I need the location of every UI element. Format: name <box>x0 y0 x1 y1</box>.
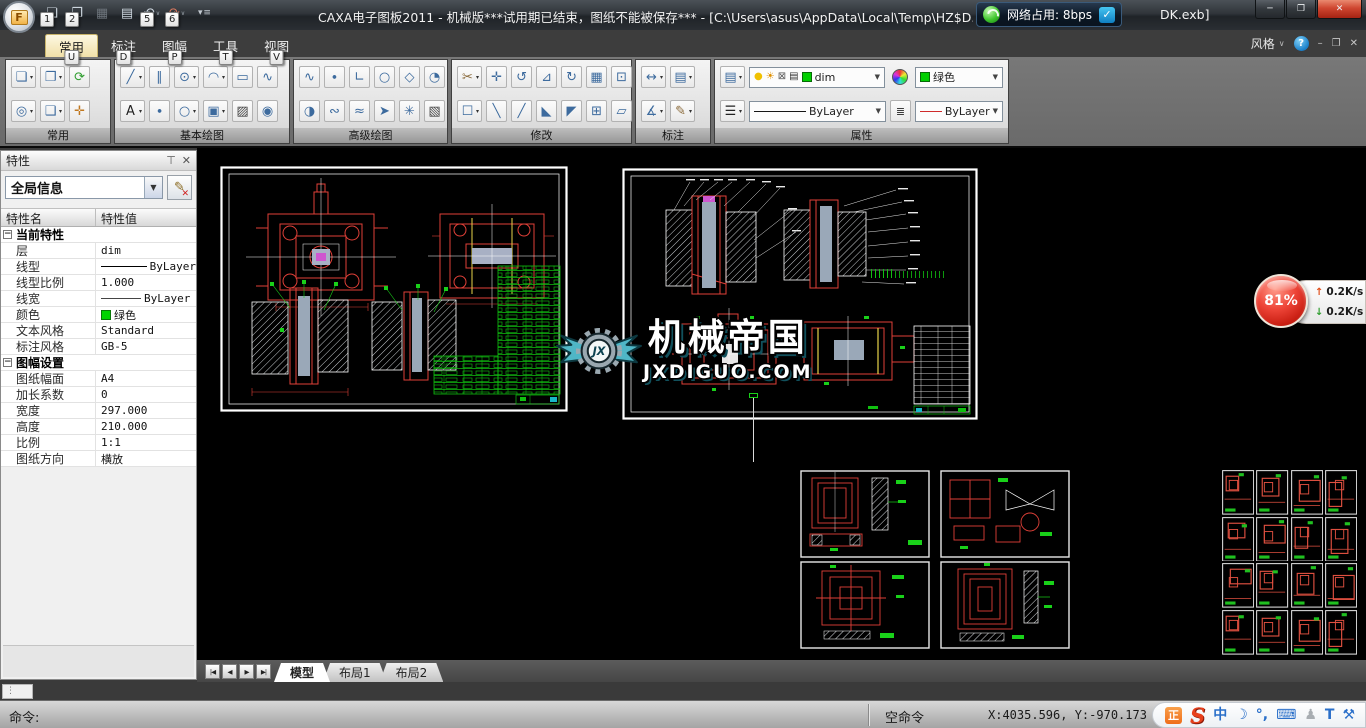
trim-button[interactable]: ╲ <box>486 100 507 122</box>
close-icon[interactable]: ✕ <box>182 155 191 166</box>
drawing-thumbnail <box>1291 563 1323 608</box>
property-row[interactable]: 加长系数0 <box>1 387 196 403</box>
linetype-combo[interactable]: ByLayer ▼ <box>749 101 886 122</box>
color-wheel-icon[interactable] <box>892 69 908 85</box>
properties-panel: 特性 ⊤ ✕ 全局信息 ▼ ✎ ✕ 特性名 特性值 <box>0 150 197 680</box>
frame-select-button[interactable]: ☐▾ <box>457 100 482 122</box>
soft-keyboard-icon[interactable]: ⌨ <box>1276 708 1296 722</box>
property-row[interactable]: 线型ByLayer <box>1 259 196 275</box>
tab-视图[interactable]: 视图V <box>251 34 302 57</box>
customize-toolbar-button[interactable]: ▾ ≡ <box>198 8 210 18</box>
properties-table-header: 特性名 特性值 <box>1 209 196 227</box>
paste-button[interactable]: ❏▾ <box>11 66 36 88</box>
drawing-thumbnail <box>1222 563 1254 608</box>
property-row[interactable]: 文本风格Standard <box>1 323 196 339</box>
part-sheet <box>940 470 1070 558</box>
properties-row-1: ▤▾ ● ☀ ⊠ ▤ dim ▼ 绿色 ▼ <box>715 60 1008 94</box>
title-bar: F ❏1❐2▦▤↶∨5↷∨6▾ ≡ CAXA电子图板2011 - 机械版***试… <box>0 0 1366 30</box>
upload-arrow-icon: ↑ <box>1315 287 1323 298</box>
status-divider <box>868 704 869 726</box>
tab-keytip-V: V <box>269 50 284 65</box>
rotate-copy-button[interactable]: ↺ <box>511 66 532 88</box>
linewidth-button[interactable]: ☰▾ <box>720 100 745 122</box>
ribbon-group-高级绘图: ∿∙∟○◇◔◑∾≈➤✳▧高级绘图 <box>293 59 448 144</box>
tab-keytip-P: P <box>168 50 182 65</box>
watermark: JX 机械帝国 JXDIGUO.COM <box>555 300 855 402</box>
drawing-thumbnail <box>1222 610 1254 655</box>
drawing-sheet-assembly-1 <box>220 166 568 412</box>
layer-color-swatch <box>802 72 812 82</box>
toolbox-icon[interactable]: ⚒ <box>1342 708 1355 722</box>
pan-button[interactable]: ✛ <box>69 100 90 122</box>
curve-button[interactable]: ∿ <box>299 66 320 88</box>
punctuation-icon[interactable]: °, <box>1256 708 1268 722</box>
spline-button[interactable]: ∿ <box>257 66 278 88</box>
minimize-button[interactable]: ─ <box>1255 0 1285 19</box>
drawing-thumbnail <box>1325 517 1357 562</box>
edit-properties-button[interactable]: ✎ ✕ <box>167 175 192 200</box>
mdi-controls: 风格 ∨ ? – ❐ ✕ <box>1251 30 1366 57</box>
tab-keytip-D: D <box>116 50 132 65</box>
doc-close-button[interactable]: ✕ <box>1350 38 1358 49</box>
circle-button[interactable]: ⊙▾ <box>174 66 199 88</box>
sheet-nav-button-2[interactable]: ▶ <box>239 664 254 679</box>
construction-line <box>753 398 754 462</box>
ribbon: ▤▾ ● ☀ ⊠ ▤ dim ▼ 绿色 ▼ ☰▾ <box>0 57 1366 148</box>
part-sheet <box>800 470 930 558</box>
sheet-tab-nav: |◀◀▶▶| <box>205 664 271 679</box>
network-usage-text: 网络占用: 8bps <box>1007 6 1092 23</box>
check-badge-icon[interactable]: ✓ <box>1099 7 1115 23</box>
wave-line-button[interactable]: ∾ <box>324 100 345 122</box>
chevron-down-icon[interactable]: ▼ <box>144 177 162 198</box>
copy-button[interactable]: ❐▾ <box>40 66 65 88</box>
ellipse2-button[interactable]: ○ <box>374 66 395 88</box>
scale-button[interactable]: ⊡ <box>611 66 632 88</box>
skin-icon[interactable]: T <box>1325 708 1335 722</box>
arrow-button[interactable]: ➤ <box>374 100 395 122</box>
layer-lock-icon: ⊠ <box>778 72 786 82</box>
coordinate-dim-button[interactable]: ∡▾ <box>641 100 666 122</box>
drawing-thumbnail <box>1222 470 1254 515</box>
property-row[interactable]: 比例1:1 <box>1 435 196 451</box>
memory-percent-ball[interactable]: 81% <box>1254 274 1308 328</box>
properties-table-body: −当前特性层dim线型ByLayer线型比例1.000线宽ByLayer颜色绿色… <box>1 227 196 467</box>
pin-icon[interactable]: ⊤ <box>166 155 176 166</box>
dimension-button[interactable]: ↔▾ <box>641 66 666 88</box>
clear-icon: ✕ <box>181 189 189 199</box>
print-button[interactable]: ▤ <box>117 3 137 23</box>
main-area: 特性 ⊤ ✕ 全局信息 ▼ ✎ ✕ 特性名 特性值 <box>0 148 1366 682</box>
layer-on-icon: ● <box>754 72 763 82</box>
tab-keytip-U: U <box>64 50 79 65</box>
parallel-line-button[interactable]: ∥ <box>149 66 170 88</box>
chevron-down-icon[interactable]: ∨ <box>1279 39 1285 48</box>
drawing-canvas[interactable]: JX 机械帝国 JXDIGUO.COM ↑0.2K/s ↓0.2K/s 81% <box>197 148 1366 660</box>
drawing-thumbnail <box>1256 517 1288 562</box>
dim-linetype-swatch <box>920 111 942 112</box>
point-button[interactable]: ∙ <box>149 100 170 122</box>
region-button[interactable]: ◉ <box>257 100 278 122</box>
property-row[interactable]: 标注风格GB-5 <box>1 339 196 355</box>
stretch-button[interactable]: ▱ <box>611 100 632 122</box>
array-button[interactable]: ▦ <box>586 66 607 88</box>
rectangle-button[interactable]: ▭ <box>232 66 253 88</box>
part-sheet <box>940 561 1070 649</box>
selection-dropdown[interactable]: 全局信息 ▼ <box>5 176 163 199</box>
property-row[interactable]: 图纸方向横放 <box>1 451 196 467</box>
hatch-button[interactable]: ▨ <box>232 100 253 122</box>
property-row[interactable]: 宽度297.000 <box>1 403 196 419</box>
new-file-button-keytip: 1 <box>40 12 54 27</box>
ribbon-group-基本绘图: ╱▾∥⊙▾◠▾▭∿A▾∙○▾▣▾▨◉基本绘图 <box>114 59 290 144</box>
ribbon-group-常用: ❏▾❐▾⟳◎▾❑▾✛常用 <box>5 59 111 144</box>
column-header-name: 特性名 <box>1 209 96 226</box>
properties-panel-title: 特性 <box>6 152 30 169</box>
ribbon-group-label: 修改 <box>452 128 631 143</box>
line-button[interactable]: ╱▾ <box>120 66 145 88</box>
drawing-thumbnail <box>1256 470 1288 515</box>
drawing-thumbnail <box>1325 563 1357 608</box>
network-guard-icon <box>983 6 1000 23</box>
help-icon[interactable]: ? <box>1294 36 1309 51</box>
command-mode: 空命令 <box>885 707 924 726</box>
window-controls: ─ ❐ ✕ <box>1255 0 1362 19</box>
property-row[interactable]: 线型比例1.000 <box>1 275 196 291</box>
undo-button-keytip: 5 <box>140 12 154 27</box>
property-group-row[interactable]: −当前特性 <box>1 227 196 243</box>
erase-button[interactable]: ✂▾ <box>457 66 482 88</box>
layer-print-icon: ▤ <box>789 72 798 82</box>
ellipse-button[interactable]: ○▾ <box>174 100 199 122</box>
sheet-nav-button-0[interactable]: |◀ <box>205 664 220 679</box>
properties-panel-header: 特性 ⊤ ✕ <box>1 151 196 171</box>
dimension-style-combo[interactable]: ByLayer ▼ <box>915 101 1003 122</box>
ribbon-group-修改: ✂▾✛↺⊿↻▦⊡☐▾╲╱◣◤⊞▱修改 <box>451 59 632 144</box>
redraw-button[interactable]: ⟳ <box>69 66 90 88</box>
properties-description-box <box>3 645 194 677</box>
sheet-tab-strip: |◀◀▶▶| 模型布局1布局2 <box>197 660 1366 682</box>
point-style-button[interactable]: ∙ <box>324 66 345 88</box>
corner-button[interactable]: ◣ <box>536 100 557 122</box>
save-button[interactable]: ▦ <box>92 3 112 23</box>
drawing-thumbnail <box>1256 563 1288 608</box>
linetype-swatch <box>754 111 806 112</box>
tab-工具[interactable]: 工具T <box>200 34 251 57</box>
cursor-coordinates: X:4035.596, Y:-970.173 <box>988 708 1147 722</box>
app-logo-icon: F <box>11 10 28 25</box>
solid-fill-button[interactable]: ▧ <box>424 100 445 122</box>
tab-keytip-T: T <box>218 50 232 65</box>
block-button[interactable]: ▣▾ <box>203 100 228 122</box>
close-button[interactable]: ✕ <box>1317 0 1362 19</box>
undo-button[interactable]: ↶∨5 <box>142 3 162 23</box>
zoom-button[interactable]: ◎▾ <box>11 100 36 122</box>
chamfer-button[interactable]: ◤ <box>561 100 582 122</box>
ribbon-tab-bar: 常用U标注D图幅P工具T视图V 风格 ∨ ? – ❐ ✕ <box>0 30 1366 57</box>
axis-button[interactable]: ∟ <box>349 66 370 88</box>
properties-table: 特性名 特性值 −当前特性层dim线型ByLayer线型比例1.000线宽ByL… <box>1 208 196 467</box>
drawing-thumbnail <box>1291 517 1323 562</box>
sheet-nav-button-1[interactable]: ◀ <box>222 664 237 679</box>
window-title: CAXA电子图板2011 - 机械版***试用期已结束，图纸不能被保存*** -… <box>318 7 973 26</box>
command-band <box>0 682 1366 700</box>
drawing-thumbnail <box>1291 470 1323 515</box>
ribbon-group-label: 常用 <box>6 128 110 143</box>
thumbnail-grid <box>1222 470 1357 651</box>
sheet-tab-模型[interactable]: 模型 <box>274 663 330 682</box>
current-layer-name: dim <box>815 71 836 84</box>
layer-combo[interactable]: ● ☀ ⊠ ▤ dim ▼ <box>749 67 885 88</box>
winged-gear-logo-icon: JX <box>555 313 643 389</box>
property-row[interactable]: 线宽ByLayer <box>1 291 196 307</box>
column-header-value: 特性值 <box>96 209 196 226</box>
account-icon[interactable]: ♟ <box>1304 708 1317 722</box>
ime-state-icon[interactable]: 正 <box>1165 707 1182 724</box>
pie-button[interactable]: ◑ <box>299 100 320 122</box>
current-linetype: ByLayer <box>809 105 854 118</box>
open-file-button-keytip: 2 <box>65 12 79 27</box>
quick-access-toolbar: ❏1❐2▦▤↶∨5↷∨6▾ ≡ <box>42 3 210 23</box>
explode-button[interactable]: ⊞ <box>586 100 607 122</box>
watermark-subtitle: JXDIGUO.COM <box>643 361 813 383</box>
rotate-button[interactable]: ↻ <box>561 66 582 88</box>
maximize-button[interactable]: ❐ <box>1286 0 1316 19</box>
current-color-swatch <box>920 72 930 82</box>
part-sheet <box>800 561 930 649</box>
color-combo[interactable]: 绿色 ▼ <box>915 67 1003 88</box>
sheet-tab-布局2[interactable]: 布局2 <box>380 663 444 682</box>
chinese-mode-icon[interactable]: 中 <box>1213 708 1227 722</box>
datum-button[interactable]: ▤▾ <box>670 66 695 88</box>
property-row[interactable]: 图纸幅面A4 <box>1 371 196 387</box>
drawing-thumbnail <box>1325 610 1357 655</box>
property-row[interactable]: 高度210.000 <box>1 419 196 435</box>
ribbon-group-属性: ▤▾ ● ☀ ⊠ ▤ dim ▼ 绿色 ▼ ☰▾ <box>714 59 1009 144</box>
upload-speed: 0.2K/s <box>1326 286 1363 298</box>
style-menu[interactable]: 风格 <box>1251 35 1275 52</box>
chevron-down-icon: ▼ <box>993 73 998 81</box>
move-button[interactable]: ✛ <box>486 66 507 88</box>
tab-标注[interactable]: 标注D <box>98 34 149 57</box>
drawing-thumbnail <box>1222 517 1254 562</box>
circle-3p-button[interactable]: ◔ <box>424 66 445 88</box>
network-usage-overlay: 网络占用: 8bps ✓ <box>976 2 1122 27</box>
new-file-button[interactable]: ❏1 <box>42 3 62 23</box>
redo-button[interactable]: ↷∨6 <box>167 3 187 23</box>
svg-text:JX: JX <box>591 345 607 358</box>
mirror-button[interactable]: ⊿ <box>536 66 557 88</box>
current-color-name: 绿色 <box>933 69 955 85</box>
chevron-down-icon: ▼ <box>993 107 998 115</box>
caxa-application-window: F ❏1❐2▦▤↶∨5↷∨6▾ ≡ CAXA电子图板2011 - 机械版***试… <box>0 0 1366 728</box>
tab-图幅[interactable]: 图幅P <box>149 34 200 57</box>
memory-percent: 81% <box>1264 293 1298 309</box>
ime-toolbar: 正S中☽°,⌨♟T⚒ <box>1152 702 1366 728</box>
app-menu-button[interactable]: F <box>3 1 35 33</box>
new-view-button[interactable]: ❑▾ <box>40 100 65 122</box>
window-title-suffix: DK.exb] <box>1160 7 1209 22</box>
contour-button[interactable]: ✳ <box>399 100 420 122</box>
watermark-title: 机械帝国 <box>648 319 808 358</box>
drawing-thumbnail <box>1325 470 1357 515</box>
arc-button[interactable]: ◠▾ <box>203 66 228 88</box>
download-arrow-icon: ↓ <box>1315 307 1323 318</box>
linestyle-manager-button[interactable]: ≣ <box>890 100 911 122</box>
doc-minimize-button[interactable]: – <box>1318 38 1323 49</box>
break-line-button[interactable]: ≈ <box>349 100 370 122</box>
ribbon-group-label: 基本绘图 <box>115 128 289 143</box>
sheet-nav-button-3[interactable]: ▶| <box>256 664 271 679</box>
current-dim-linetype: ByLayer <box>945 105 990 118</box>
chevron-down-icon: ▼ <box>875 73 880 81</box>
command-window-grip[interactable]: ⋮ <box>2 684 33 699</box>
properties-selector-row: 全局信息 ▼ ✎ ✕ <box>1 171 196 203</box>
chevron-down-icon: ▼ <box>876 107 881 115</box>
layer-settings-button[interactable]: ▤▾ <box>720 66 745 88</box>
status-bar: 命令: 空命令 X:4035.596, Y:-970.173 正S中☽°,⌨♟T… <box>0 700 1366 728</box>
properties-row-2: ☰▾ ByLayer ▼ ≣ ByLayer ▼ <box>715 94 1008 128</box>
network-speed-widget[interactable]: ↑0.2K/s ↓0.2K/s 81% <box>1254 274 1366 330</box>
property-group-row[interactable]: −图幅设置 <box>1 355 196 371</box>
doc-restore-button[interactable]: ❐ <box>1332 38 1341 49</box>
sheet-tab-布局1[interactable]: 布局1 <box>323 663 387 682</box>
sogou-logo-icon[interactable]: S <box>1190 705 1205 726</box>
ribbon-group-label: 标注 <box>636 128 710 143</box>
download-speed: 0.2K/s <box>1326 306 1363 318</box>
text-button[interactable]: A▾ <box>120 100 145 122</box>
extend-button[interactable]: ╱ <box>511 100 532 122</box>
redo-button-keytip: 6 <box>165 12 179 27</box>
drawing-thumbnail <box>1291 610 1323 655</box>
selection-dropdown-value: 全局信息 <box>6 178 144 197</box>
polygon-button[interactable]: ◇ <box>399 66 420 88</box>
ribbon-group-标注: ↔▾▤▾∡▾✎▾标注 <box>635 59 711 144</box>
ribbon-group-label: 属性 <box>715 128 1008 143</box>
layer-thaw-icon: ☀ <box>766 72 775 82</box>
sheet-tabs: 模型布局1布局2 <box>281 663 443 682</box>
property-row[interactable]: 颜色绿色 <box>1 307 196 323</box>
command-prompt[interactable]: 命令: <box>9 707 39 726</box>
open-file-button[interactable]: ❐2 <box>67 3 87 23</box>
ribbon-group-label: 高级绘图 <box>294 128 447 143</box>
property-row[interactable]: 层dim <box>1 243 196 259</box>
tab-常用[interactable]: 常用U <box>45 34 98 57</box>
drawing-thumbnail <box>1256 610 1288 655</box>
text-edit-button[interactable]: ✎▾ <box>670 100 695 122</box>
half-full-width-icon[interactable]: ☽ <box>1235 708 1248 722</box>
